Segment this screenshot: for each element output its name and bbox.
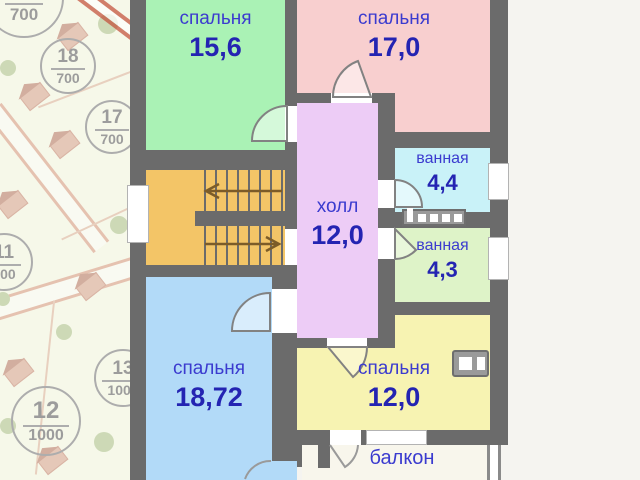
room-area: 18,72 [146,382,272,413]
room-name: спальня [300,358,488,380]
room-name: спальня [146,358,272,380]
door-arc-bedroom-top-left [252,106,287,141]
label-balcony: балкон [322,447,482,470]
room-name: ванная [395,237,490,255]
label-bedroom-top-right: спальня 17,0 [300,8,488,63]
label-bedroom-top-left: спальня 15,6 [146,8,285,63]
room-name: ванная [395,150,490,168]
label-bedroom-bottom-right: спальня 12,0 [300,358,488,413]
label-bathroom-upper: ванная 4,4 [395,150,490,196]
room-name: спальня [146,8,285,30]
door-arc-bedroom-bottom-left [232,293,270,331]
room-name: холл [297,196,378,218]
room-area: 4,3 [395,257,490,282]
room-area: 15,6 [146,32,285,63]
room-area: 4,4 [395,170,490,195]
stairs-down-arrow [205,237,279,251]
label-bedroom-bottom-left: спальня 18,72 [146,358,272,413]
room-name: балкон [322,447,482,470]
label-hall: холл 12,0 [297,196,378,251]
door-arc-bedroom-top-right [333,61,371,97]
room-name: спальня [300,8,488,30]
room-area: 12,0 [297,220,378,251]
stairs-up-arrow [206,184,282,198]
floor-plan-image: 21 700 18 700 17 700 11 700 13 1000 12 1… [0,0,640,480]
room-area: 12,0 [300,382,488,413]
label-bathroom-lower: ванная 4,3 [395,237,490,283]
room-area: 17,0 [300,32,488,63]
door-arc-bottom-left-corner [245,461,271,479]
